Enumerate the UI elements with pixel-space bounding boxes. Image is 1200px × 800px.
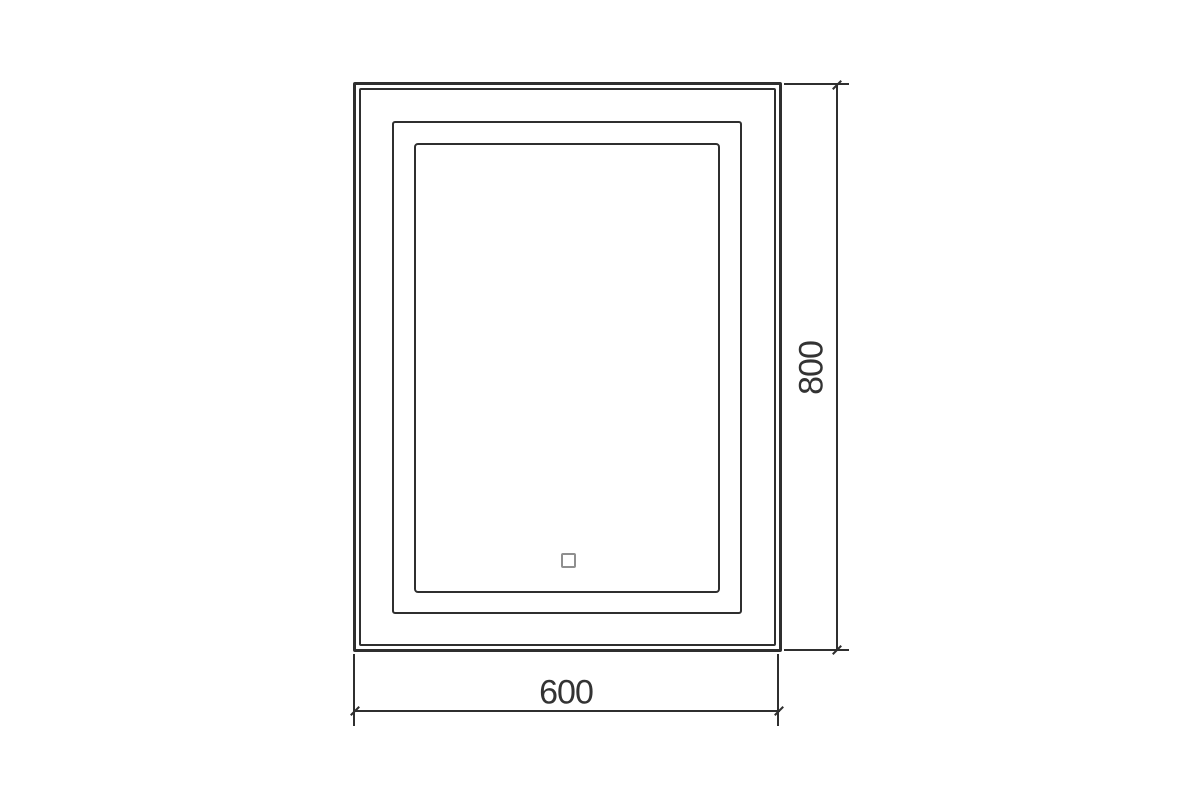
height-dimension-line (836, 84, 838, 651)
width-dimension-label: 600 (539, 674, 593, 713)
touch-sensor-icon (561, 553, 576, 568)
mirror-inner-edge (414, 143, 720, 593)
width-extension-line-left (353, 654, 355, 726)
drawing-canvas: 800 600 (0, 0, 1200, 800)
height-dimension-label: 800 (793, 341, 832, 395)
mirror-outer-frame (353, 82, 782, 652)
height-extension-line-bottom (784, 649, 849, 651)
width-extension-line-right (777, 654, 779, 726)
